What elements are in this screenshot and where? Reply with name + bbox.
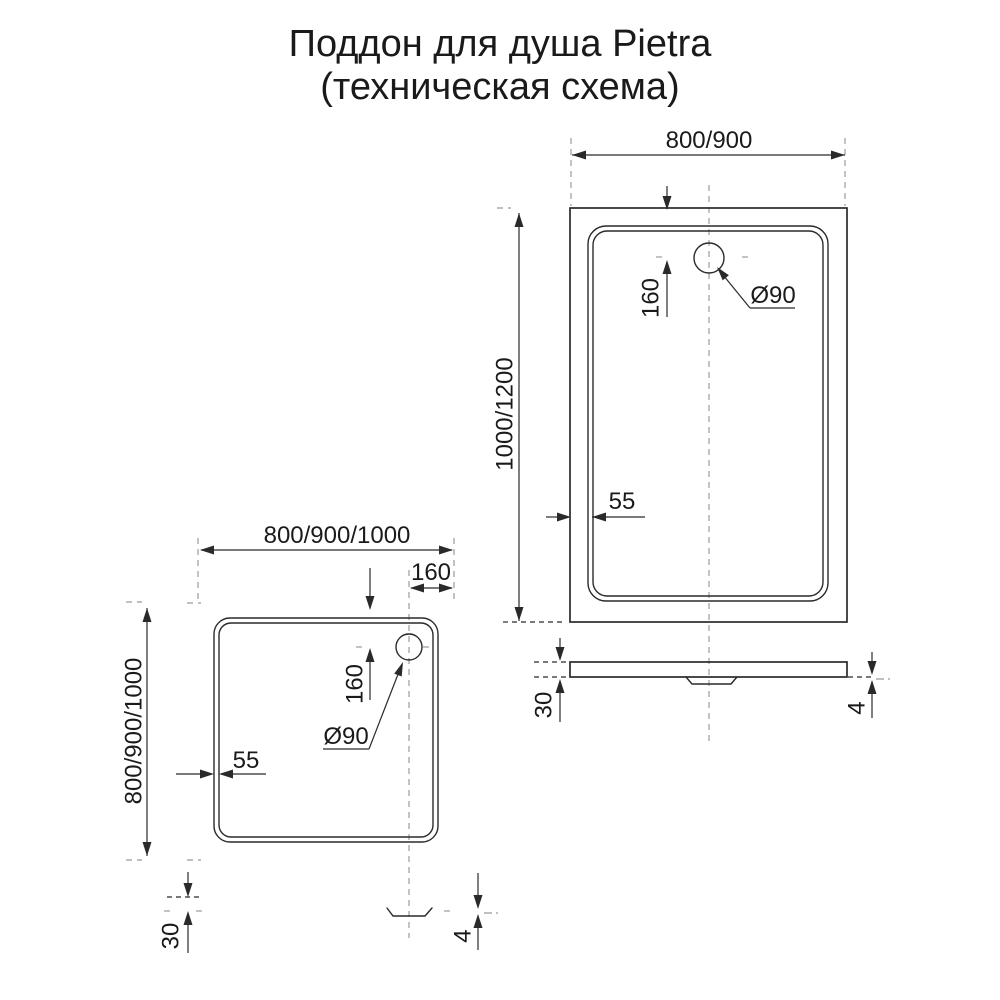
arrowhead-down xyxy=(184,883,193,897)
arrowhead-right xyxy=(557,513,571,522)
arrowhead-top xyxy=(143,608,152,622)
square-depth-label: 800/900/1000 xyxy=(120,658,147,805)
rect-height-dimension: 30 xyxy=(530,638,564,722)
square-height-dimension: 30 xyxy=(157,872,204,953)
arrowhead-up xyxy=(556,679,565,693)
rect-width-dimension: 800/900 xyxy=(571,127,845,206)
square-drain-offset-horizontal-label: 160 xyxy=(411,559,451,586)
square-height-label: 30 xyxy=(157,923,184,950)
arrowhead-right xyxy=(200,770,214,779)
square-tray-top-view: 800/900/1000 160 800/900/1000 160 xyxy=(120,522,454,938)
square-wall-thickness-dimension: 55 xyxy=(176,747,266,779)
square-protrusion-label: 4 xyxy=(449,929,476,942)
rect-drain-diameter-label: Ø90 xyxy=(750,282,795,309)
arrowhead-down xyxy=(868,661,877,675)
title-line-2: (техническая схема) xyxy=(320,66,679,108)
arrowhead-bottom xyxy=(515,607,524,621)
leader-arrowhead xyxy=(394,662,403,677)
rect-tray-side-view: 30 4 xyxy=(530,638,893,722)
rect-depth-label: 1000/1200 xyxy=(491,357,518,470)
rect-wall-thickness-label: 55 xyxy=(609,488,636,515)
rect-depth-dimension: 1000/1200 xyxy=(491,208,566,622)
rect-drain-diameter-callout: Ø90 xyxy=(717,267,796,309)
rect-drain-circle xyxy=(694,243,724,273)
arrowhead-up xyxy=(868,680,877,694)
rect-tray-top-view: 800/900 1000/1200 160 Ø90 xyxy=(491,127,847,745)
square-drain-offset-vertical-label: 160 xyxy=(341,664,368,704)
square-protrusion-dimension: 4 xyxy=(449,873,498,950)
arrowhead-left xyxy=(200,546,214,555)
arrowhead-down xyxy=(366,596,375,610)
arrowhead-bottom xyxy=(143,842,152,856)
square-drain-offset-horizontal-dimension: 160 xyxy=(410,559,453,593)
drawing-title: Поддон для душа Pietra (техническая схем… xyxy=(289,23,713,108)
rect-profile-drain xyxy=(686,677,737,684)
square-width-label: 800/900/1000 xyxy=(264,522,411,549)
arrowhead-up xyxy=(184,911,193,925)
rect-protrusion-label: 4 xyxy=(843,701,870,714)
square-wall-thickness-label: 55 xyxy=(233,747,260,774)
arrowhead-right xyxy=(831,151,845,160)
square-drain-offset-vertical-dimension: 160 xyxy=(341,568,374,704)
square-depth-dimension: 800/900/1000 xyxy=(120,602,201,860)
rect-height-label: 30 xyxy=(530,692,557,719)
rect-width-label: 800/900 xyxy=(666,127,753,154)
leader-arrowhead xyxy=(717,267,729,280)
arrowhead-up xyxy=(663,260,672,274)
arrowhead-top xyxy=(515,213,524,227)
rect-protrusion-dimension: 4 xyxy=(843,652,893,718)
technical-drawing-canvas: Поддон для душа Pietra (техническая схем… xyxy=(0,0,1000,1000)
arrowhead-down xyxy=(556,647,565,661)
square-drain-diameter-label: Ø90 xyxy=(323,723,368,750)
rect-wall-thickness-dimension: 55 xyxy=(546,488,645,522)
technical-drawing-page: Поддон для душа Pietra (техническая схем… xyxy=(0,0,1000,1000)
square-tray-side-view: 30 4 xyxy=(157,872,498,953)
rect-drain-offset-label: 160 xyxy=(637,278,664,318)
title-line-1: Поддон для душа Pietra xyxy=(289,23,713,65)
arrowhead-up xyxy=(474,914,483,928)
leader-line xyxy=(369,664,402,749)
arrowhead-up xyxy=(366,648,375,662)
rect-drain-offset-dimension: 160 xyxy=(637,186,671,318)
arrowhead-left xyxy=(572,151,586,160)
arrowhead-right xyxy=(439,546,453,555)
arrowhead-down xyxy=(474,895,483,909)
